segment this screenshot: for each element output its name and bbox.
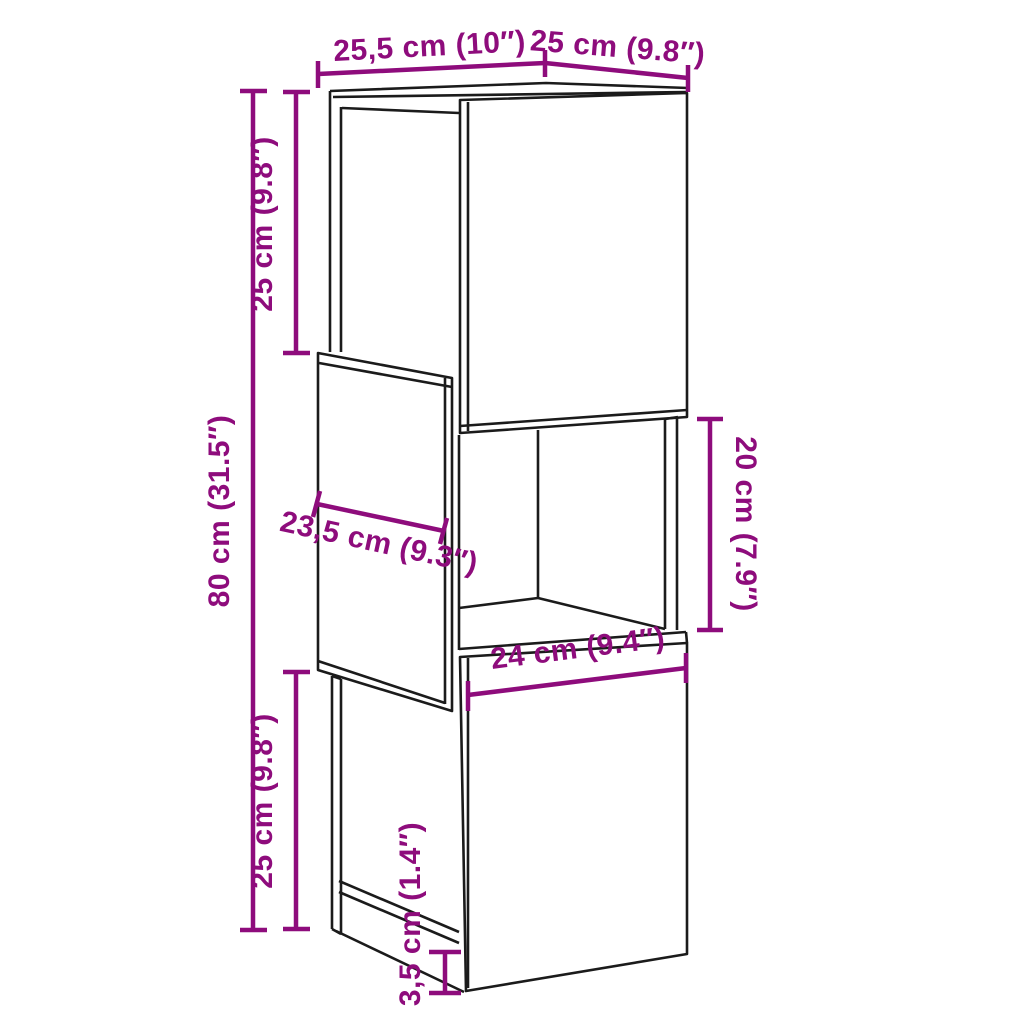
dimension-diagram: 25,5 cm (10″) 25 cm (9.8″) 25 cm (9.8″) … — [0, 0, 1024, 1024]
label-height-plinth: 3,5 cm (1.4″) — [394, 822, 427, 1006]
diagram-svg: 25,5 cm (10″) 25 cm (9.8″) 25 cm (9.8″) … — [0, 0, 1024, 1024]
label-height-total: 80 cm (31.5″) — [203, 415, 236, 608]
bottom-door-panel — [460, 643, 687, 991]
label-width-bottom: 24 cm (9.4″) — [489, 621, 667, 676]
label-height-upper: 25 cm (9.8″) — [246, 136, 279, 311]
label-depth-top: 25,5 cm (10″) — [332, 25, 526, 68]
cabinet-top-inner-edge — [342, 108, 459, 113]
cabinet-top-back-edge — [330, 83, 688, 91]
top-door-panel — [460, 93, 687, 433]
label-height-middle-right: 20 cm (7.9″) — [729, 436, 762, 611]
divider-right-step — [686, 632, 687, 643]
compartment-floor-left-edge — [459, 598, 538, 608]
middle-door-bottom-inner — [318, 661, 445, 703]
label-height-lower: 25 cm (9.8″) — [246, 713, 279, 888]
top-door-bottom-sliver — [460, 410, 687, 426]
